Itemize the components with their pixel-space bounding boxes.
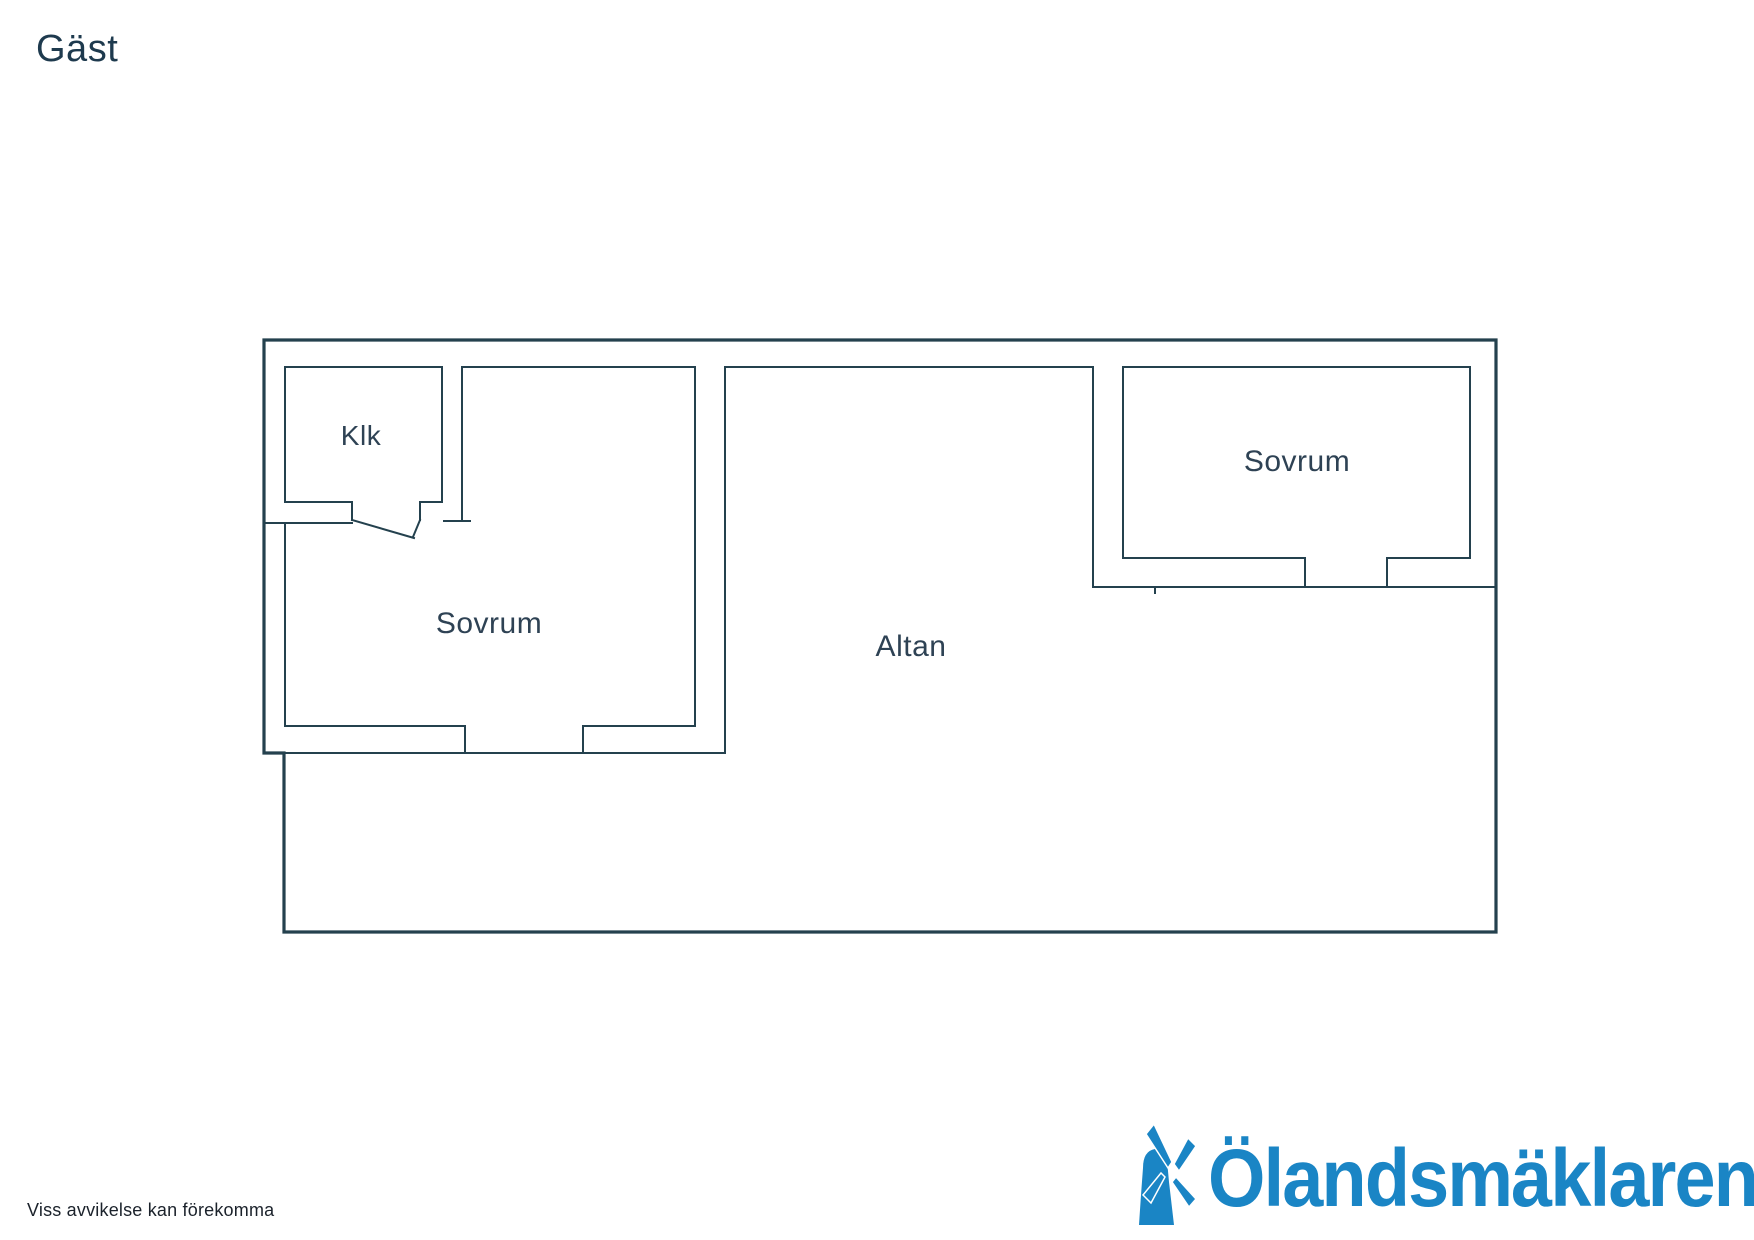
room-label-klk: Klk bbox=[341, 420, 381, 452]
floor-plan bbox=[0, 0, 1754, 1240]
klk-door-leaf bbox=[352, 520, 420, 538]
windmill-blade-ne bbox=[1174, 1138, 1196, 1171]
windmill-icon bbox=[1138, 1122, 1200, 1226]
altan-sovrum-divider bbox=[1093, 367, 1123, 587]
windmill-blade-se bbox=[1172, 1177, 1196, 1207]
room-label-sovrum-right: Sovrum bbox=[1244, 445, 1350, 479]
room-label-altan: Altan bbox=[876, 630, 947, 664]
sovrum-left-bottom-wall bbox=[265, 726, 725, 753]
sovrum-right-walls bbox=[1093, 367, 1496, 593]
room-label-sovrum-left: Sovrum bbox=[436, 607, 542, 641]
brand-logo: Ölandsmäklaren bbox=[1138, 1120, 1754, 1230]
sovrum-altan-divider bbox=[695, 367, 725, 753]
disclaimer-text: Viss avvikelse kan förekomma bbox=[27, 1200, 274, 1221]
brand-logo-text: Ölandsmäklaren bbox=[1208, 1138, 1754, 1220]
